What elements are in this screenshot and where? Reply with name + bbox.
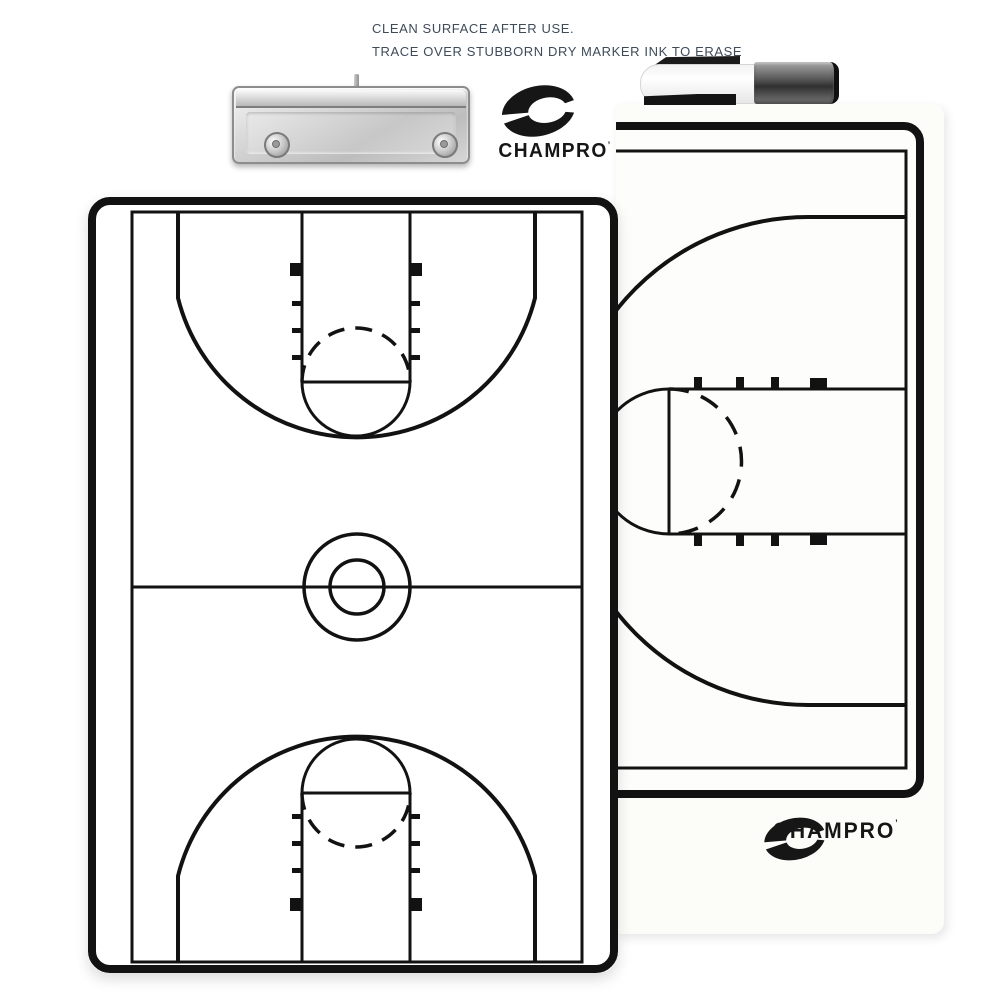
fullcourt-diagram bbox=[88, 197, 618, 973]
clip-screw-right bbox=[432, 132, 458, 158]
champro-wordmark: CHAMPRO’ bbox=[773, 818, 900, 844]
champro-wordmark: CHAMPRO’ bbox=[495, 140, 616, 163]
screw-center bbox=[272, 140, 280, 148]
champro-logo-rear: CHAMPRO’ bbox=[756, 816, 916, 844]
trademark-tick: ’ bbox=[895, 818, 899, 828]
clip-screw-left bbox=[264, 132, 290, 158]
front-fullcourt-board bbox=[88, 197, 618, 973]
clipboard-clip bbox=[228, 72, 476, 168]
clip-plate bbox=[232, 86, 470, 164]
marker-cap bbox=[754, 62, 839, 104]
clip-upper-lip bbox=[236, 90, 466, 108]
rear-board-border bbox=[616, 126, 920, 794]
screw-center bbox=[440, 140, 448, 148]
product-photo: CLEAN SURFACE AFTER USE. TRACE OVER STUB… bbox=[0, 0, 1000, 1000]
champro-logo-top: CHAMPRO’ bbox=[492, 84, 618, 163]
trademark-tick: ’ bbox=[608, 140, 612, 150]
marker-clip-underside bbox=[644, 94, 736, 105]
rear-halfcourt-board: CHAMPRO’ bbox=[616, 104, 944, 934]
champro-c-icon bbox=[492, 84, 588, 138]
wordmark-text: CHAMPRO bbox=[498, 140, 607, 162]
halfcourt-diagram bbox=[616, 104, 944, 934]
front-board-border bbox=[92, 201, 614, 969]
dry-erase-marker bbox=[636, 54, 838, 108]
wordmark-text: CHAMPRO bbox=[773, 818, 896, 843]
care-line-1: CLEAN SURFACE AFTER USE. bbox=[372, 17, 742, 40]
